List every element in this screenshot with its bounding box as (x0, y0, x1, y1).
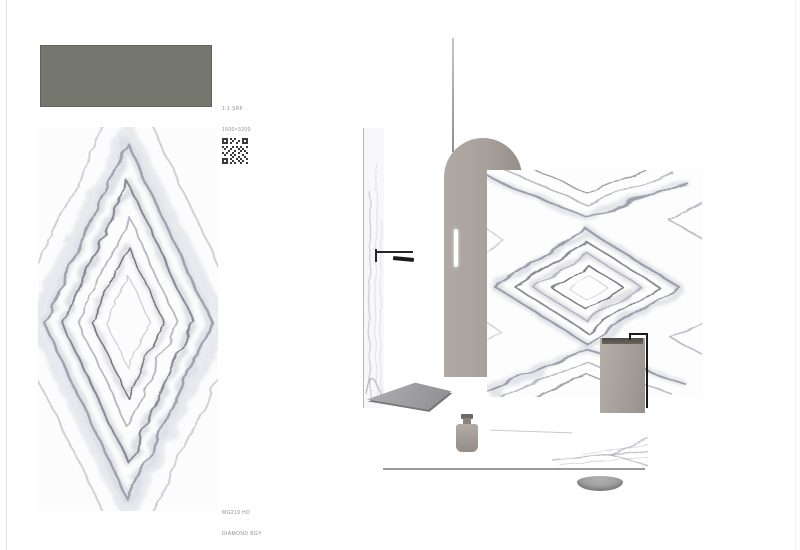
qr-code (222, 138, 248, 164)
slab-caption: MG219 HD DIAMOND BGY (222, 496, 262, 550)
color-swatch (40, 45, 212, 107)
floor-faucet-riser (646, 333, 648, 408)
floor-faucet-spout (629, 333, 648, 335)
ceiling-pole (452, 38, 454, 152)
led-strip (454, 229, 458, 267)
floor-faucet-tip (629, 333, 631, 340)
basin-opening (602, 338, 643, 344)
page-edge-line-left (6, 0, 7, 550)
pedestal-basin (600, 338, 645, 413)
floor-reflection-graphic (552, 426, 648, 469)
page-edge-line-right (795, 0, 796, 550)
shower-head (393, 256, 414, 262)
slab-caption-line1: MG219 HD (222, 510, 262, 517)
marble-feature-wall (487, 170, 702, 397)
slab-marble-graphic (38, 127, 218, 511)
swatch-caption-line2: 1600×3200 (222, 127, 251, 134)
panel-vein-graphic (364, 128, 384, 408)
catalog-page: 1:1 SRF 1600×3200 (0, 0, 800, 550)
qr-code-graphic (222, 138, 248, 164)
marble-slab-sample (38, 127, 218, 511)
shower-glass-panel (363, 128, 384, 408)
floor-marble-reflection (552, 426, 648, 469)
swatch-caption-line1: 1:1 SRF (222, 106, 251, 113)
wall-marble-graphic (487, 170, 702, 397)
soap-dish (577, 476, 623, 491)
shower-arm (375, 251, 413, 253)
shower-tray-surface (365, 382, 453, 411)
slab-caption-line2: DIAMOND BGY (222, 531, 262, 538)
decor-vase (456, 424, 478, 452)
shower-tray (365, 382, 453, 411)
